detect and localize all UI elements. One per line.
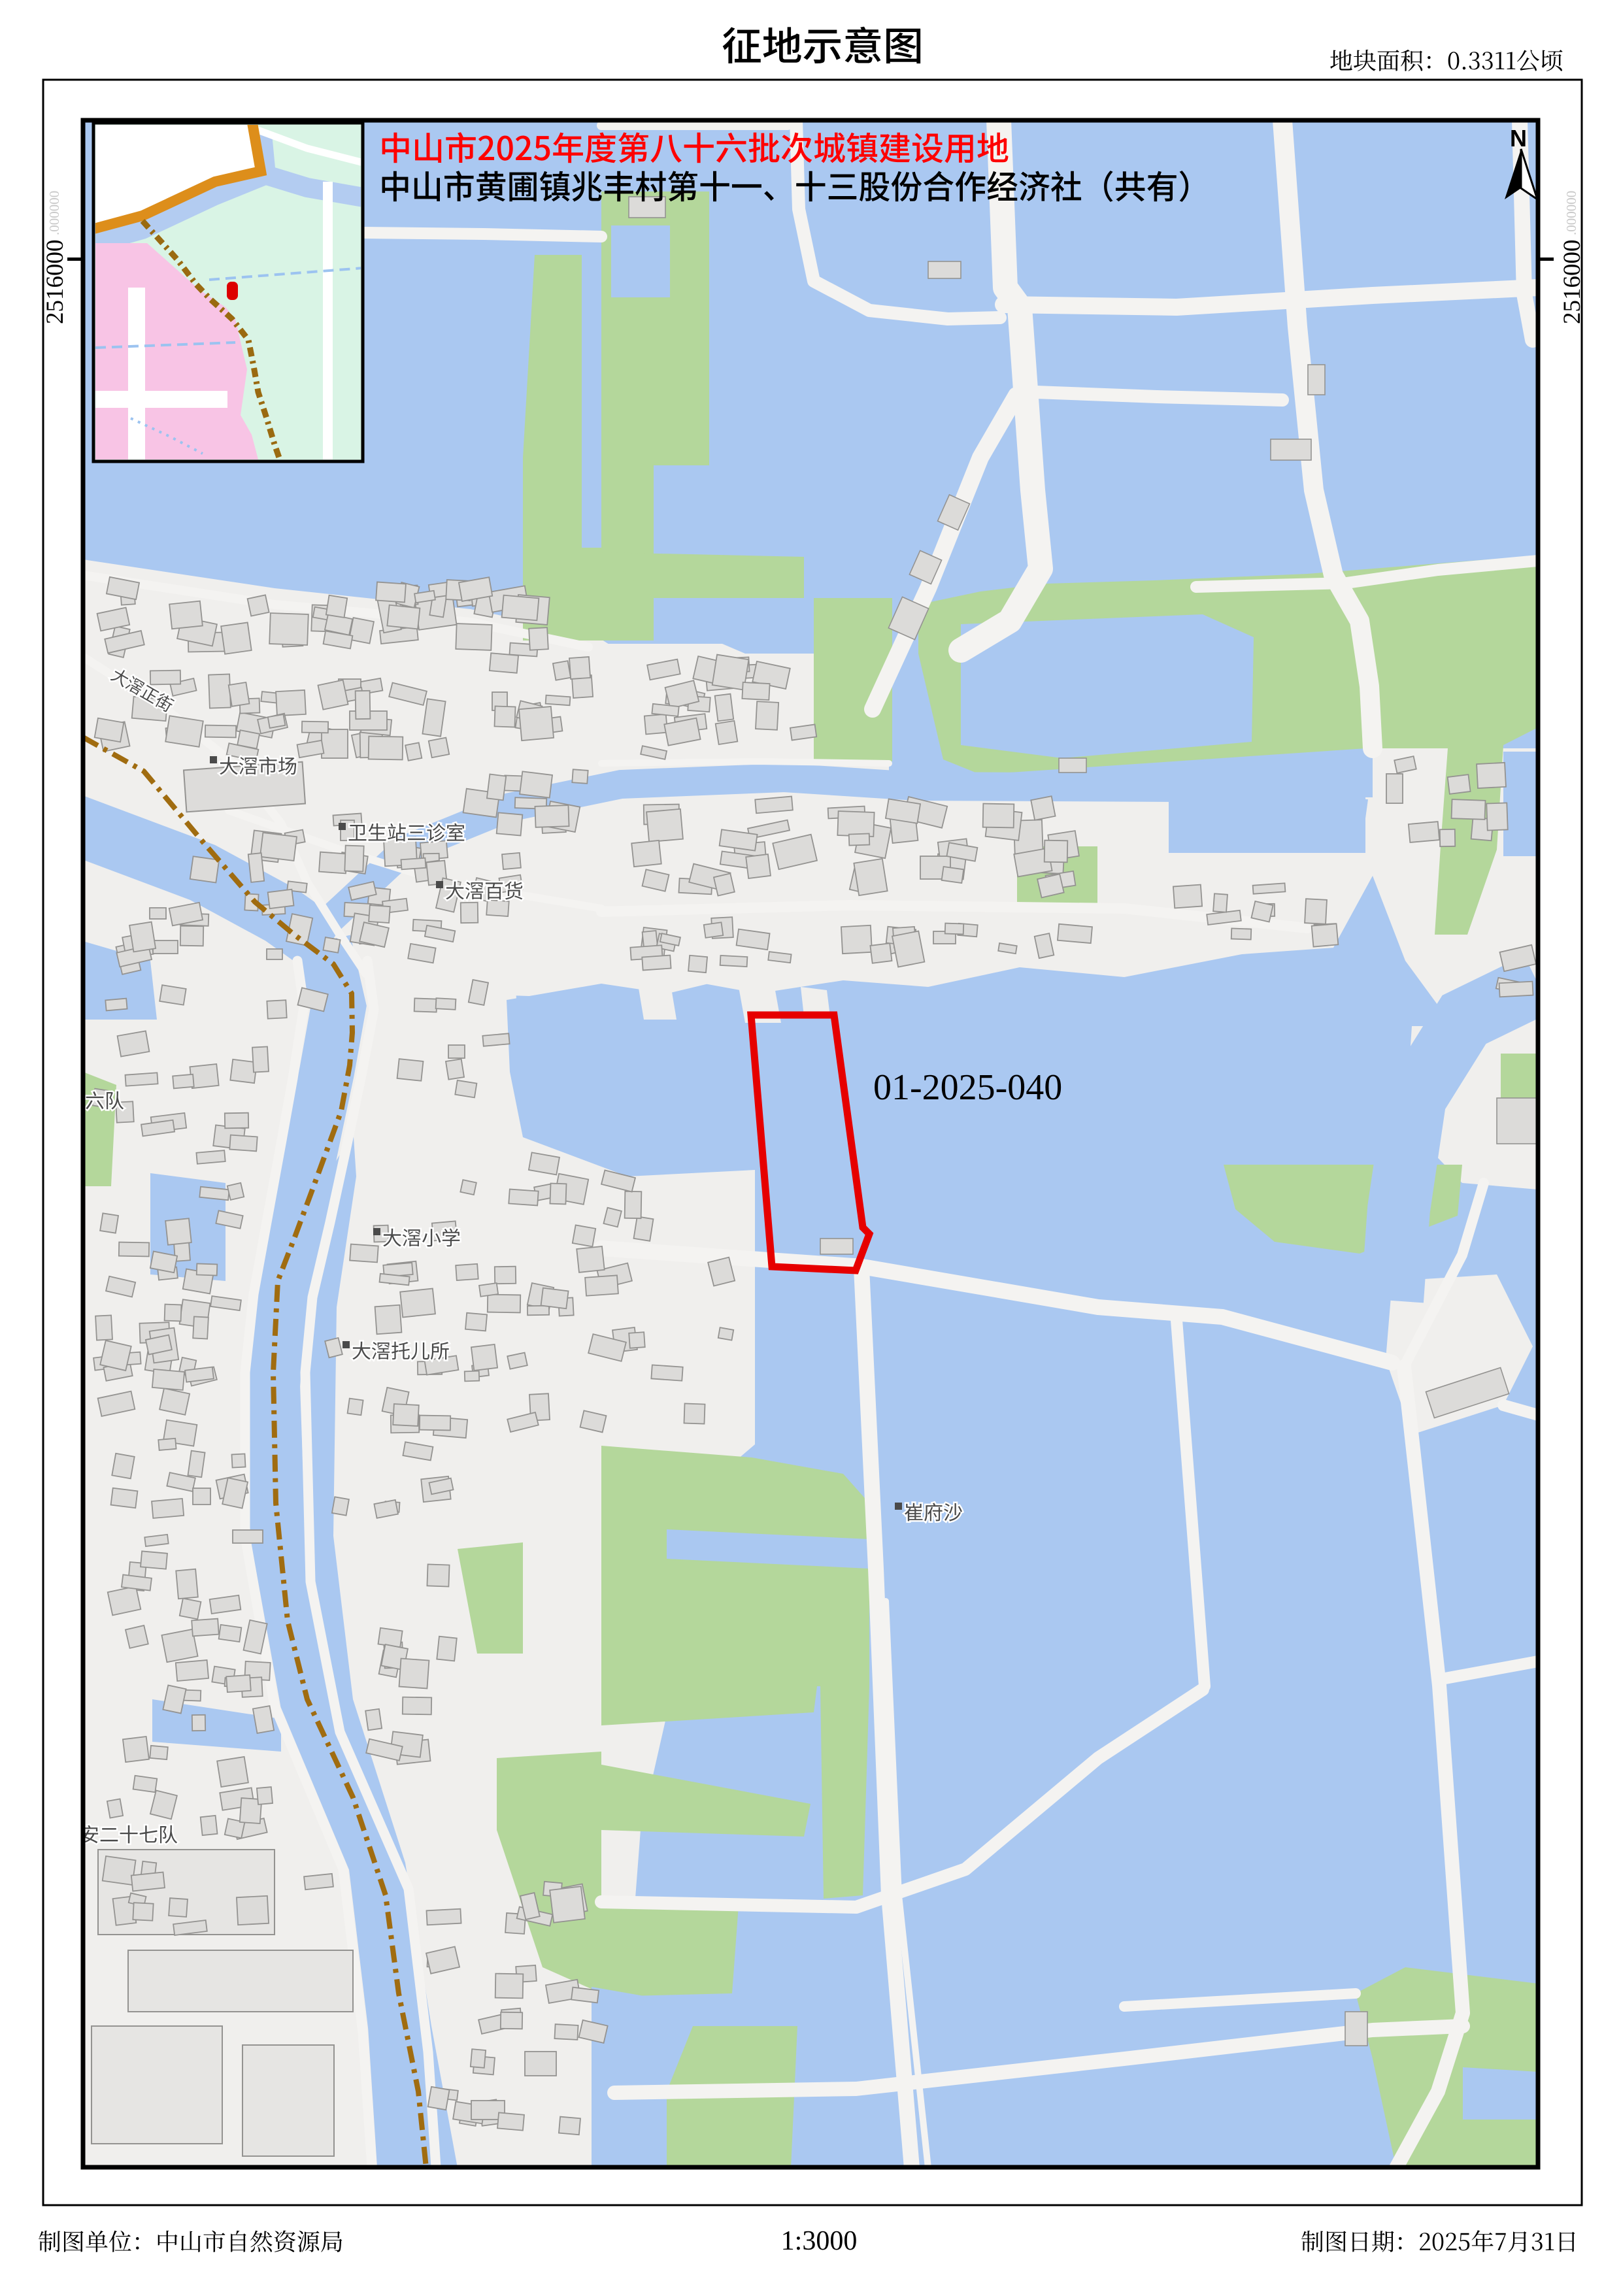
svg-text:.000000: .000000	[46, 191, 62, 235]
svg-text:2516000: 2516000	[42, 240, 69, 325]
svg-text:01-2025-040: 01-2025-040	[873, 1067, 1062, 1108]
svg-text:2516000: 2516000	[1559, 240, 1586, 325]
svg-text:N: N	[1510, 125, 1527, 152]
svg-text:.000000: .000000	[1563, 191, 1579, 235]
svg-text:1:3000: 1:3000	[781, 2226, 858, 2256]
